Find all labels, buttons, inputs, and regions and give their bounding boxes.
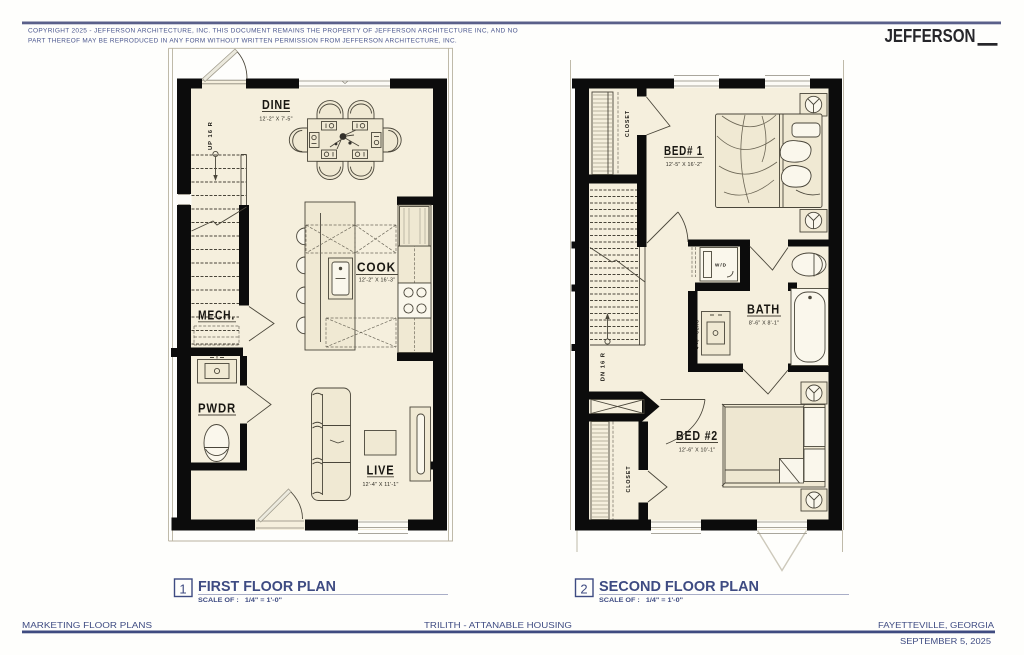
svg-text:PART THEREOF MAY BE REPRODUCED: PART THEREOF MAY BE REPRODUCED IN ANY FO… bbox=[28, 38, 457, 45]
svg-text:FIRST FLOOR PLAN: FIRST FLOOR PLAN bbox=[198, 578, 336, 595]
svg-text:LIVE: LIVE bbox=[367, 463, 395, 478]
svg-text:COPYRIGHT 2025 - JEFFERSON ARC: COPYRIGHT 2025 - JEFFERSON ARCHITECTURE,… bbox=[28, 28, 518, 35]
svg-text:12'-4" X 11'-1": 12'-4" X 11'-1" bbox=[362, 482, 398, 488]
svg-text:BED #2: BED #2 bbox=[676, 428, 718, 443]
svg-text:COOK: COOK bbox=[357, 260, 396, 275]
svg-text:SCALE OF : 1/4" = 1'-0": SCALE OF : 1/4" = 1'-0" bbox=[599, 597, 683, 604]
svg-text:SCALE OF : 1/4" = 1'-0": SCALE OF : 1/4" = 1'-0" bbox=[198, 597, 282, 604]
svg-text:CLOSET: CLOSET bbox=[626, 465, 632, 492]
svg-text:JEFFERSON: JEFFERSON bbox=[885, 26, 976, 46]
svg-text:12'-6" X 10'-1": 12'-6" X 10'-1" bbox=[679, 448, 715, 454]
svg-text:MECH.: MECH. bbox=[198, 308, 235, 323]
svg-text:12'-5" X 16'-2": 12'-5" X 16'-2" bbox=[666, 162, 702, 168]
svg-text:W/D: W/D bbox=[715, 263, 727, 268]
svg-text:MARKETING FLOOR PLANS: MARKETING FLOOR PLANS bbox=[22, 621, 152, 630]
svg-text:8'-6" X 8'-1": 8'-6" X 8'-1" bbox=[749, 321, 779, 327]
svg-text:PWDR: PWDR bbox=[198, 401, 236, 416]
svg-text:SEPTEMBER 5, 2025: SEPTEMBER 5, 2025 bbox=[900, 637, 992, 646]
svg-text:1: 1 bbox=[179, 582, 186, 597]
svg-text:FAYETTEVILLE, GEORGIA: FAYETTEVILLE, GEORGIA bbox=[878, 621, 995, 630]
svg-text:TRILITH - ATTANABLE HOUSING: TRILITH - ATTANABLE HOUSING bbox=[424, 621, 572, 630]
svg-text:2: 2 bbox=[580, 582, 587, 597]
svg-text:UP 16 R: UP 16 R bbox=[208, 121, 214, 150]
svg-text:BED# 1: BED# 1 bbox=[664, 143, 703, 158]
svg-text:DINE: DINE bbox=[262, 97, 291, 112]
svg-text:4'-0" CLRG: 4'-0" CLRG bbox=[696, 319, 700, 349]
svg-text:CLOSET: CLOSET bbox=[625, 110, 631, 137]
svg-text:12'-2" X 7'-5": 12'-2" X 7'-5" bbox=[259, 117, 292, 123]
svg-text:SECOND FLOOR PLAN: SECOND FLOOR PLAN bbox=[599, 578, 759, 595]
svg-text:DN 16 R: DN 16 R bbox=[601, 352, 607, 381]
svg-text:12'-2" X 16'-3": 12'-2" X 16'-3" bbox=[359, 278, 395, 284]
svg-text:BATH: BATH bbox=[747, 302, 780, 317]
